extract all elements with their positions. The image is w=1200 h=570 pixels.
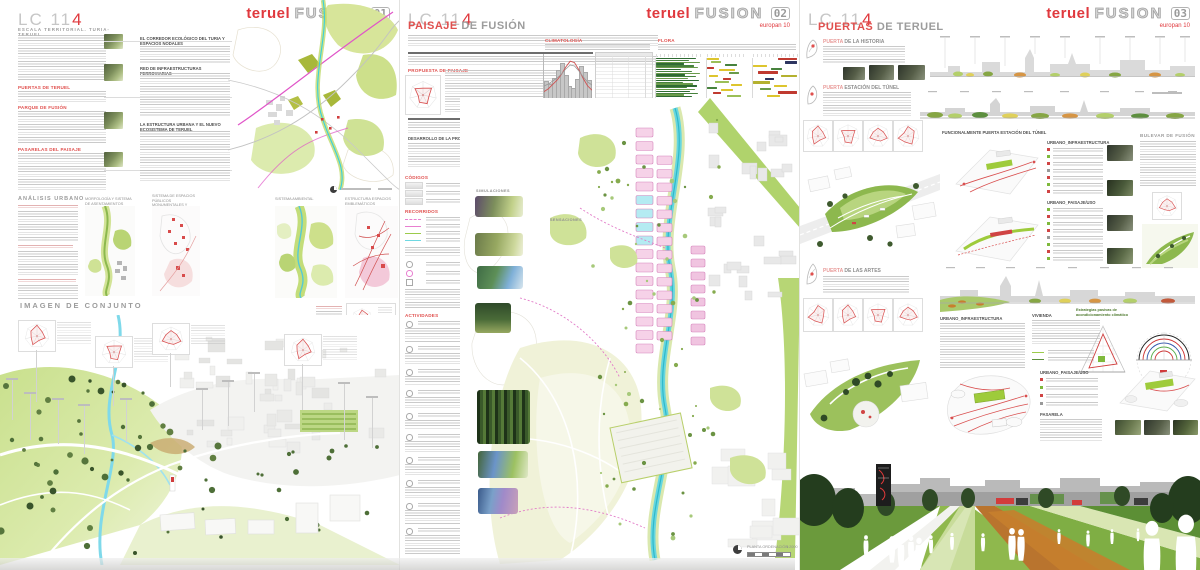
flora-chart-trees [655, 58, 702, 98]
flora-bar [709, 75, 718, 77]
radar-callout [284, 334, 322, 366]
radar-box [863, 120, 893, 152]
heading-pasarelas: PASARELAS DEL PAISAJE [18, 147, 81, 152]
legend-square-icon [406, 279, 413, 286]
north-arrow [330, 186, 337, 193]
gate-sketch-icon [805, 38, 820, 60]
flora-bar [771, 68, 781, 70]
territorial-map [228, 0, 400, 190]
flora-bar [711, 61, 721, 63]
heading-actividades: ACTIVIDADES [405, 313, 438, 318]
vignette [477, 266, 523, 289]
photo-thumb [1173, 420, 1198, 435]
map-thumbnail [104, 152, 123, 167]
heading-urbano-paisaje: URBANO_PAISAJE/USO [1047, 200, 1096, 205]
axon-diagram-3 [1115, 363, 1198, 413]
flora-bar [760, 88, 772, 90]
flora-bar [729, 72, 739, 74]
radar-callout [95, 336, 133, 368]
caption-estrategias: Estrategias pasivas de acondicionamiento… [1076, 308, 1134, 317]
map-caption-espacios-emblematicos: ESTRUCTURA ESPACIOS EMBLEMÁTICOS [345, 197, 397, 206]
radar-box [833, 120, 863, 152]
vignette [475, 196, 523, 217]
axon-render-artes [800, 334, 935, 446]
plan-label: PLANTA ORDENACIÓN [747, 545, 788, 550]
flora-bar [778, 58, 796, 60]
photo-thumb [1107, 215, 1133, 231]
skyline-section-3 [940, 266, 1195, 312]
caption-sensaciones: SENSACIONES [550, 218, 582, 223]
radar-callout [152, 323, 190, 355]
flora-bar [758, 71, 779, 73]
skyline-section-2 [920, 90, 1195, 124]
flora-bar [656, 69, 681, 70]
gate-sketch-icon [805, 262, 820, 286]
board-edge [0, 558, 795, 570]
map-sistema-ambiental [275, 206, 337, 298]
heading-urbano-infraestructura-2: URBANO_INFRAESTRUCTURA [940, 316, 1002, 321]
map-espacios-publicos [152, 206, 200, 296]
north-arrow [733, 545, 742, 554]
heading-parque-fusion: PARQUE DE FUSIÓN [18, 105, 67, 110]
flora-bar [707, 87, 717, 89]
flora-bar [778, 91, 796, 93]
axon-diagram-2 [950, 205, 1042, 265]
heading-imagen-conjunto: IMAGEN DE CONJUNTO [20, 301, 143, 310]
climograph [543, 54, 592, 99]
radar-box [1152, 192, 1182, 220]
photo-thumb [1115, 420, 1141, 435]
gate-heading-artes: PUERTA DE LAS ARTES [823, 268, 881, 274]
map-morfologia [85, 206, 135, 296]
radar-box [803, 298, 833, 332]
heading-urbano-infraestructura: URBANO_INFRAESTRUCTURA [1047, 140, 1109, 145]
flora-bar [707, 67, 714, 69]
flora-bar [721, 89, 733, 91]
caption-simulaciones: SIMULACIONES [476, 189, 510, 194]
map-caption-sistema-ambiental: SISTEMA AMBIENTAL [275, 197, 335, 202]
radar-box [803, 120, 833, 152]
flora-bar [753, 81, 770, 83]
map-espacios-emblematicos [345, 206, 398, 298]
flora-bar [781, 75, 797, 77]
photo-thumb [843, 67, 865, 80]
heading-pasarela: PASARELA [1040, 412, 1063, 417]
flora-bar [656, 60, 689, 61]
competition-boards: LC 114 teruel FUSION 01 europan 10 ESCAL… [0, 0, 1200, 570]
flora-bar [765, 78, 774, 80]
flow-diagram [940, 366, 1035, 442]
flora-bar [713, 92, 721, 94]
radar-box [833, 298, 863, 332]
flora-bar [727, 95, 741, 97]
photomontage-perspective [800, 448, 1200, 570]
heading-urbano-paisaje-2: URBANO_PAISAJE/USO [1040, 370, 1089, 375]
flora-bar [725, 64, 737, 66]
heading-vivienda: VIVIENDA [1032, 313, 1052, 318]
heading-bulevar: BULEVAR DE FUSIÓN [1140, 133, 1195, 138]
legend-dot-icon [406, 270, 413, 277]
panel-03: LC 114 teruel FUSION 03 europan 10 PUERT… [800, 0, 1200, 570]
radar-box [893, 298, 923, 332]
gate-heading-estacion: PUERTA ESTACIÓN DEL TÚNEL [823, 85, 899, 91]
photo-thumb [898, 65, 925, 80]
flora-bar [753, 65, 767, 67]
panel-01: LC 114 teruel FUSION 01 europan 10 ESCAL… [0, 0, 400, 570]
panel-title: PUERTAS DE TERUEL [818, 21, 944, 33]
gate-heading-historia: PUERTA DE LA HISTORIA [823, 39, 884, 45]
axon-diagram-1 [950, 140, 1042, 198]
scale-bar [747, 552, 791, 557]
heading-puertas-teruel: PUERTAS DE TERUEL [18, 85, 70, 90]
photo-thumb [1144, 420, 1170, 435]
radar-box [893, 120, 923, 152]
flora-bar [785, 61, 797, 63]
axon-render-estacion [800, 152, 940, 270]
photo-thumb [1107, 180, 1133, 196]
plan-scale: 1:2000 [786, 545, 798, 550]
map-thumbnail [104, 64, 123, 81]
radar-box [863, 298, 893, 332]
photo-thumb [1107, 248, 1133, 264]
flora-chart-flowers [752, 58, 799, 98]
flora-bar [656, 80, 699, 81]
vignette [475, 233, 523, 256]
heading-flora: FLORA [658, 38, 675, 43]
bulevar-render [1142, 224, 1198, 268]
forest-photo [477, 390, 530, 444]
flora-bar [715, 81, 729, 83]
temperature-lines [544, 54, 592, 98]
flora-chart-shrubs [706, 58, 747, 98]
panel-title: PAISAJE DE FUSIÓN [408, 20, 526, 32]
photo-thumb [869, 65, 894, 80]
flora-bar [774, 85, 788, 87]
photo-thumb [1107, 145, 1133, 161]
heading-analisis-urbano: ANÁLISIS URBANO [18, 196, 84, 202]
heading-climatologia: CLIMATOLOGÍA [545, 38, 582, 43]
logo: teruel FUSION 03 europan 10 [1046, 6, 1190, 29]
map-thumbnail [104, 112, 123, 129]
flora-bar [656, 71, 692, 72]
logo: teruel FUSION 02 europan 10 [646, 6, 790, 29]
radar-callout [18, 320, 56, 352]
flora-bar [767, 95, 780, 97]
flora-bar [707, 58, 719, 60]
legend-dot-icon [406, 261, 413, 268]
vignette [478, 451, 528, 478]
flora-bar [719, 69, 735, 71]
vignette [475, 303, 511, 333]
panel-02: LC 114 teruel FUSION 02 europan 10 PAISA… [400, 0, 800, 570]
heading-recorridos: RECORRIDOS [405, 209, 438, 214]
map-caption-morfologia: MORFOLOGÍA Y SISTEMA DE ASENTAMIENTOS [85, 197, 135, 206]
species-table [595, 52, 653, 100]
flora-bar [731, 84, 742, 86]
flora-bar [656, 89, 695, 90]
gate-sketch-icon [805, 84, 820, 106]
flora-bar [723, 78, 731, 80]
vignette [478, 488, 518, 514]
heading-codigos: CÓDIGOS [405, 175, 428, 180]
paragraph [18, 35, 106, 81]
paisaje-radar [405, 75, 441, 115]
heading-corredor: EL CORREDOR ECOLÓGICO DEL TURIA Y ESPACI… [140, 36, 230, 46]
flora-bar [656, 91, 690, 92]
skyline-section-1 [930, 34, 1195, 86]
label-funcional: FUNCIONALMENTE PUERTA ESTACIÓN DEL TÚNEL [942, 130, 1046, 135]
